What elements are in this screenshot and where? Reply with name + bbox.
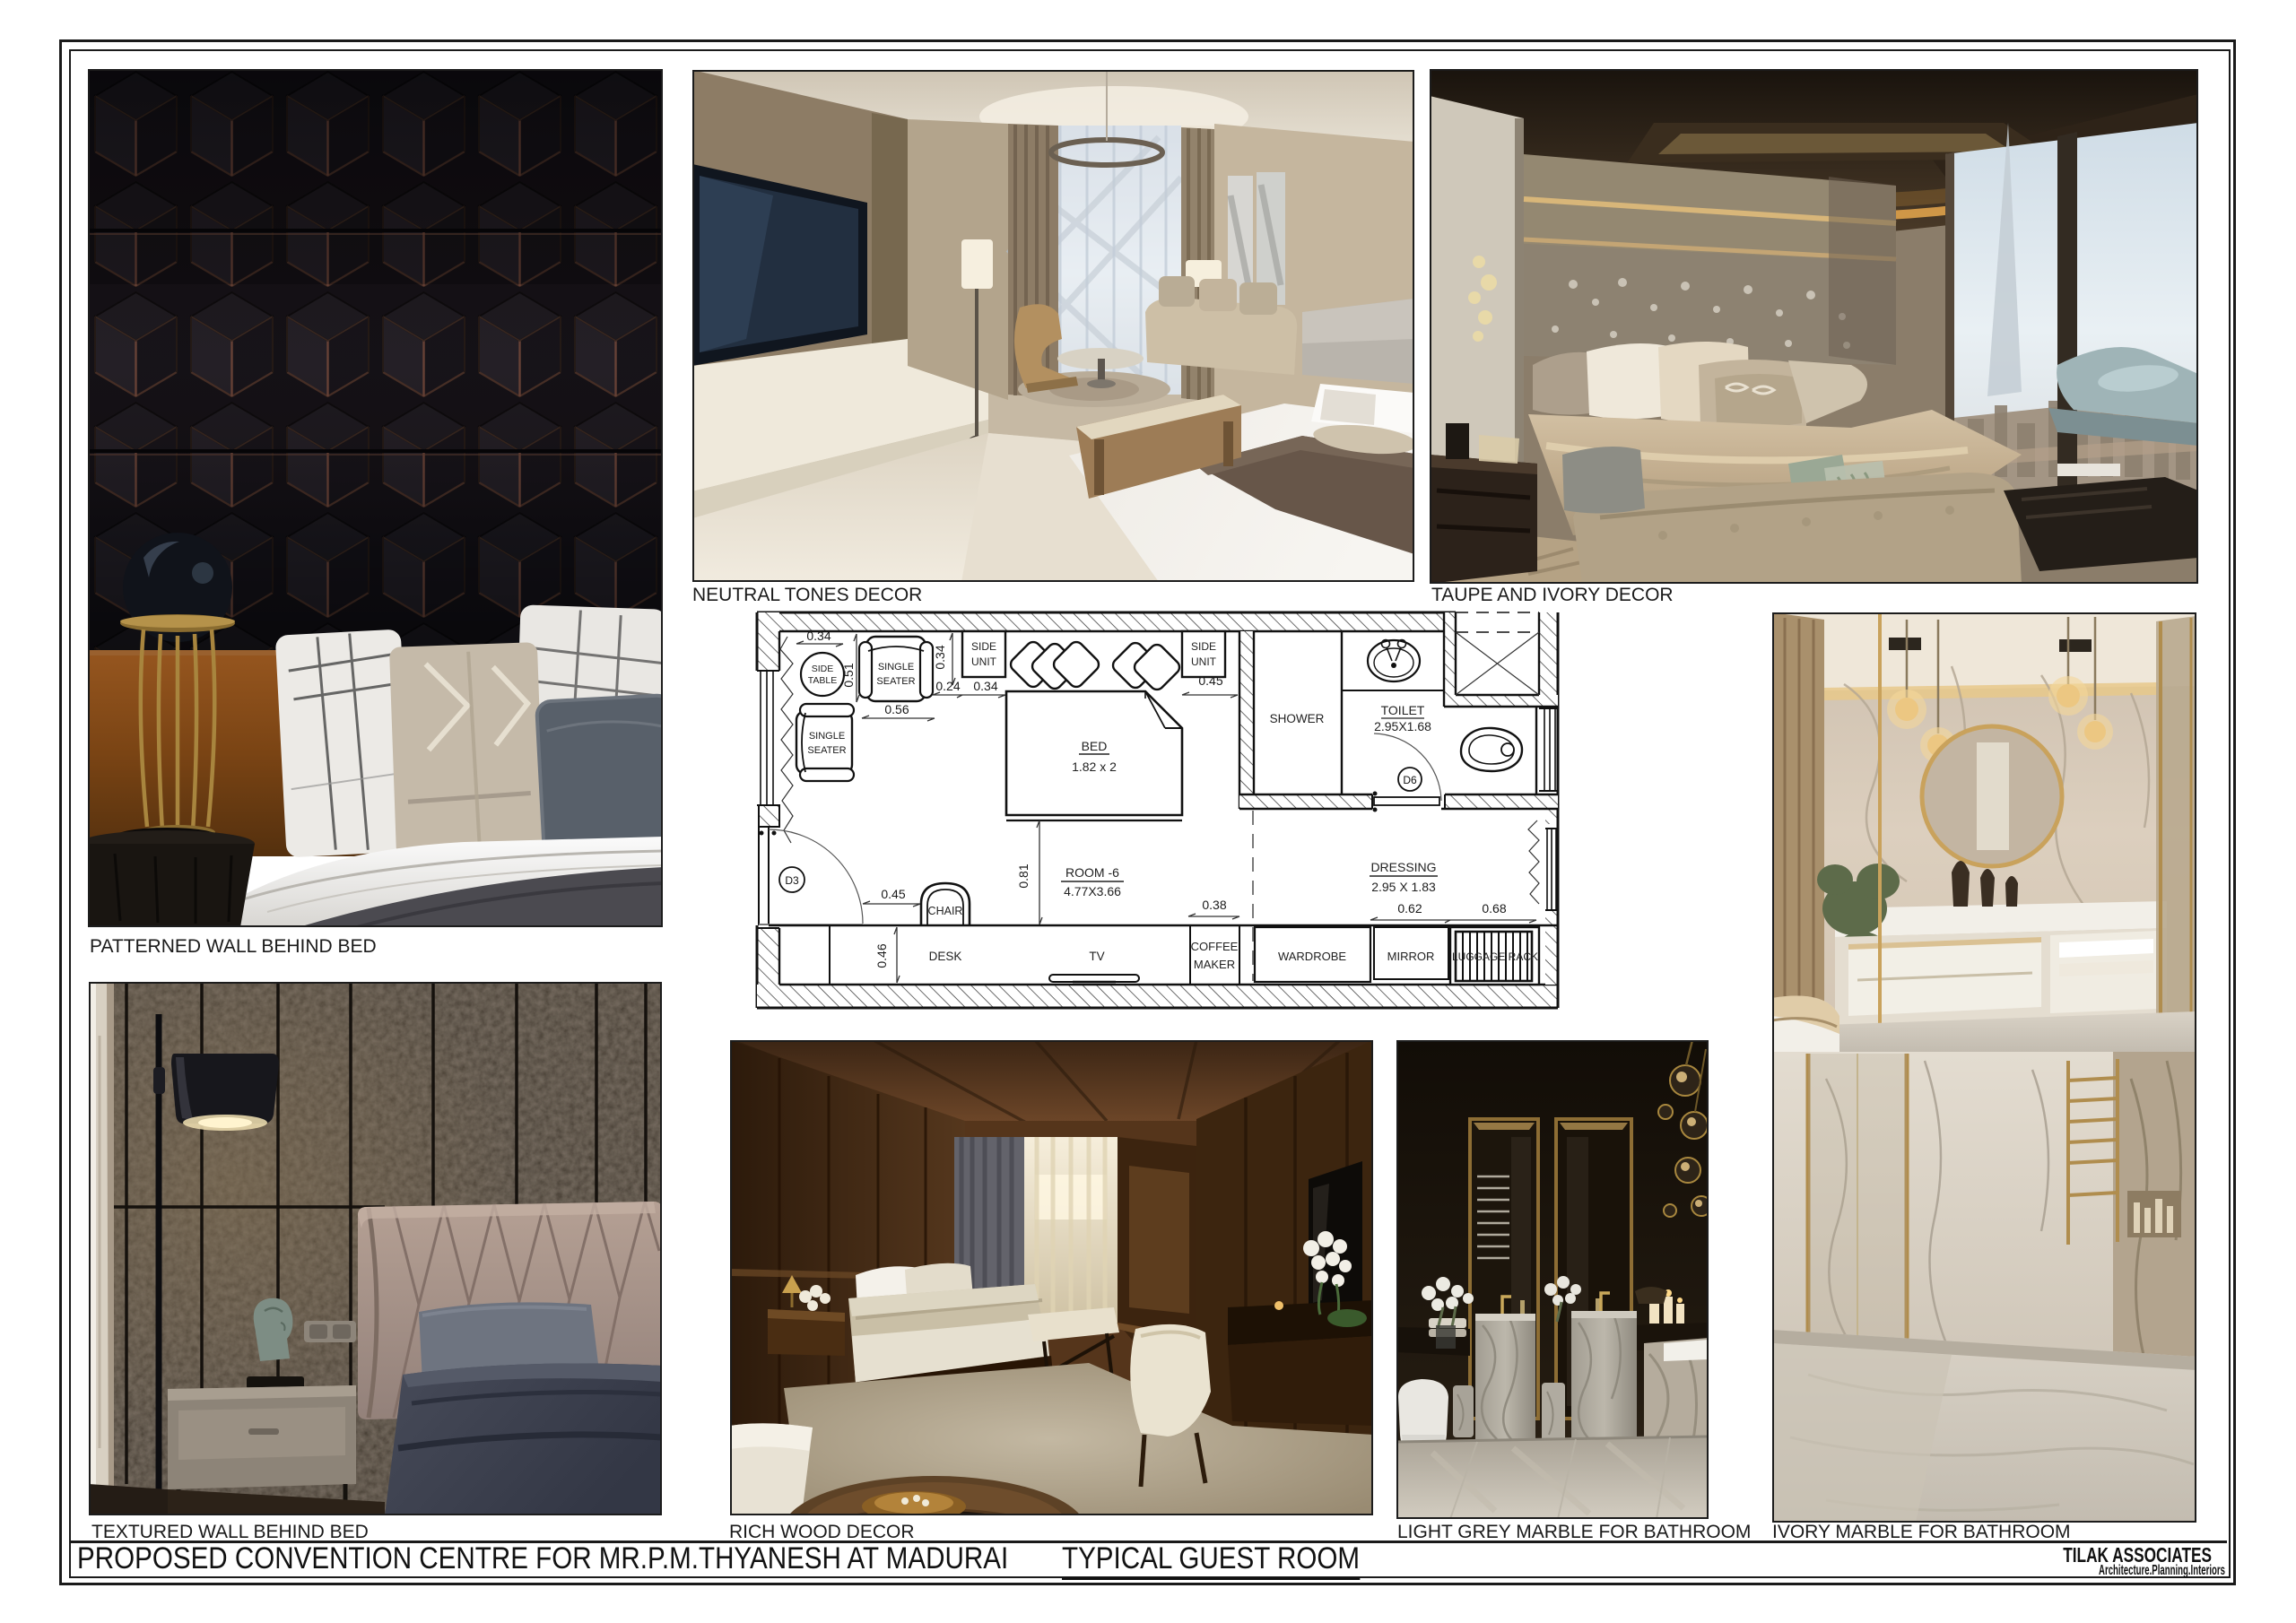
svg-text:SINGLE: SINGLE xyxy=(878,662,914,673)
svg-text:0.68: 0.68 xyxy=(1482,901,1506,916)
svg-text:MIRROR: MIRROR xyxy=(1387,950,1435,963)
svg-text:0.34: 0.34 xyxy=(806,629,831,643)
svg-text:0.81: 0.81 xyxy=(1016,864,1031,888)
svg-text:SIDE: SIDE xyxy=(812,664,834,674)
svg-text:SEATER: SEATER xyxy=(876,676,915,687)
svg-text:COFFEE: COFFEE xyxy=(1191,940,1239,953)
svg-text:BED: BED xyxy=(1082,739,1108,753)
svg-text:2.95X1.68: 2.95X1.68 xyxy=(1374,719,1431,733)
svg-text:MAKER: MAKER xyxy=(1194,958,1235,971)
svg-text:D3: D3 xyxy=(785,874,799,887)
svg-text:SHOWER: SHOWER xyxy=(1270,712,1325,725)
svg-text:0.34: 0.34 xyxy=(973,679,997,693)
svg-text:0.62: 0.62 xyxy=(1397,901,1422,916)
svg-text:ROOM -6: ROOM -6 xyxy=(1065,865,1119,880)
svg-text:0.46: 0.46 xyxy=(874,943,889,968)
svg-text:0.45: 0.45 xyxy=(1198,673,1222,688)
svg-text:SEATER: SEATER xyxy=(807,745,846,756)
svg-text:SINGLE: SINGLE xyxy=(809,731,845,742)
svg-text:TABLE: TABLE xyxy=(808,675,837,686)
svg-text:SIDE: SIDE xyxy=(971,640,996,653)
svg-text:0.45: 0.45 xyxy=(881,887,905,901)
svg-text:WARDROBE: WARDROBE xyxy=(1278,950,1346,963)
svg-text:0.51: 0.51 xyxy=(841,663,856,687)
svg-text:UNIT: UNIT xyxy=(1191,655,1217,668)
svg-text:UNIT: UNIT xyxy=(971,655,997,668)
svg-text:LUGGAGE RACK: LUGGAGE RACK xyxy=(1452,950,1538,963)
svg-text:DRESSING: DRESSING xyxy=(1370,860,1436,874)
svg-text:2.95 X 1.83: 2.95 X 1.83 xyxy=(1371,880,1436,894)
svg-text:TOILET: TOILET xyxy=(1381,703,1425,717)
svg-text:0.38: 0.38 xyxy=(1202,898,1226,912)
svg-text:0.24: 0.24 xyxy=(935,679,960,693)
svg-text:4.77X3.66: 4.77X3.66 xyxy=(1064,884,1121,898)
svg-text:TV: TV xyxy=(1089,950,1104,963)
svg-text:1.82 x 2: 1.82 x 2 xyxy=(1072,759,1117,774)
svg-text:0.56: 0.56 xyxy=(884,702,909,716)
svg-text:DESK: DESK xyxy=(929,950,962,963)
svg-text:CHAIR: CHAIR xyxy=(928,905,963,917)
svg-text:SIDE: SIDE xyxy=(1191,640,1216,653)
svg-text:0.34: 0.34 xyxy=(933,645,947,669)
svg-text:D6: D6 xyxy=(1403,774,1417,786)
